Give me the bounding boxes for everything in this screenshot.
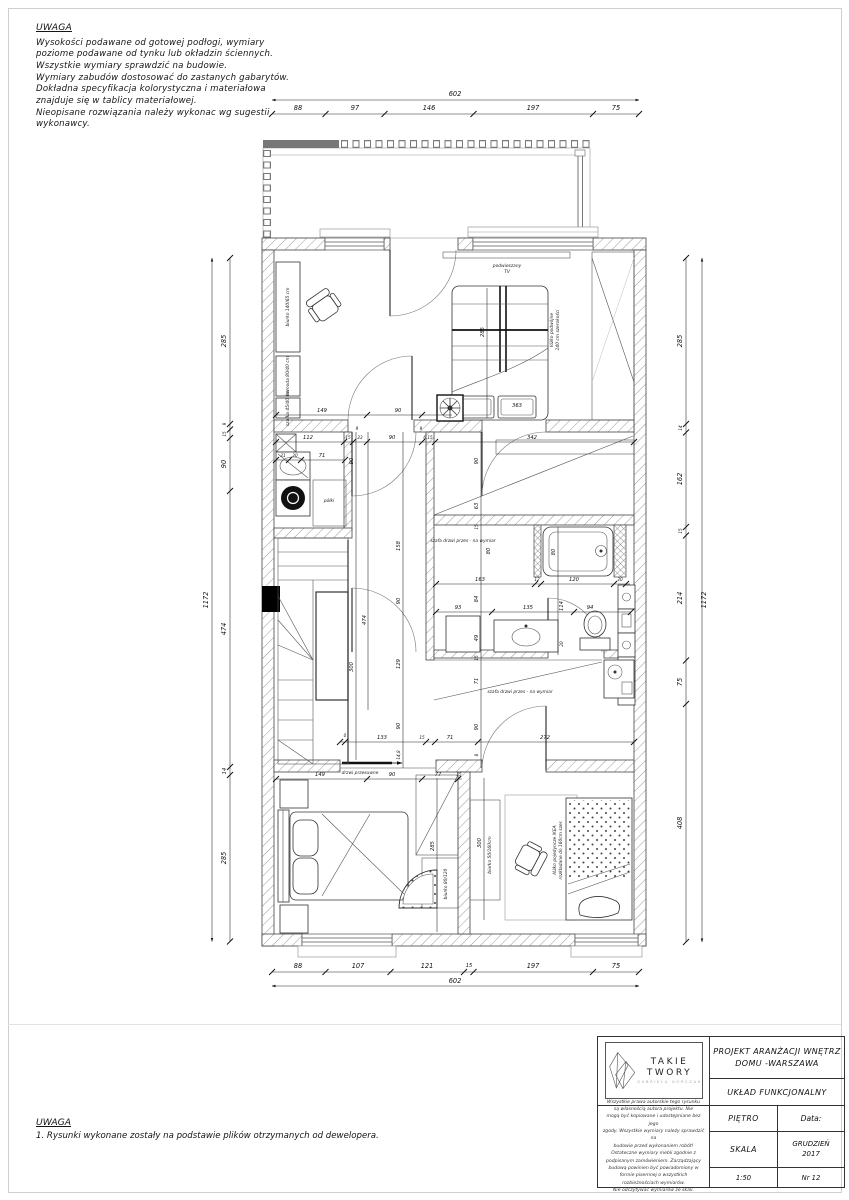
dim-chain-left: 1172 285 9 15 90 474 14 285 xyxy=(202,255,233,945)
dim-label: 474 xyxy=(362,615,368,625)
dim-label: 12 xyxy=(534,577,540,582)
dim-label: 75 xyxy=(612,962,620,970)
dim-label: 14,8 xyxy=(396,750,401,760)
door-balcony xyxy=(390,250,456,316)
dim-label: 14 xyxy=(222,768,228,775)
dim-label: 90 xyxy=(389,772,396,778)
date-value-cell: GRUDZIEŃ 2017 xyxy=(777,1131,844,1167)
corner-sink-unit xyxy=(604,660,634,698)
project-title-cell: PROJEKT ARANŻACJI WNĘTRZ DOMU -WARSZAWA xyxy=(709,1037,844,1078)
legal-line: budowie przed wykonaniem robót! xyxy=(601,1143,706,1150)
dim-label: 15 xyxy=(222,431,227,437)
sheet-number-cell: Nr 12 xyxy=(777,1167,844,1187)
logo-kites-icon xyxy=(606,1044,637,1098)
dim-label: 20 xyxy=(559,641,564,647)
desk-chair-bottom xyxy=(512,840,550,880)
dim-label: 285 xyxy=(220,852,228,865)
desk-bottom-right xyxy=(470,800,500,900)
dim-label: 158 xyxy=(396,540,402,551)
legal-line: Wszystkie prawa autorskie tego rysunku xyxy=(601,1099,706,1106)
legal-line: są własnością autora projektu. Nie xyxy=(601,1106,706,1113)
dim-label: 97 xyxy=(351,104,360,112)
dim-chain-bottom: 88 107 121 15 197 75 602 xyxy=(269,962,642,986)
label-shelves: półki xyxy=(323,497,335,504)
dim-label: 77 xyxy=(435,772,442,778)
wardrobe-hall-upper xyxy=(434,436,634,515)
dim-label: 84 xyxy=(474,596,480,603)
label-bed-double: łóżko podwójne xyxy=(548,313,555,347)
dim-label: 114 xyxy=(559,601,565,611)
dim-label: 90 xyxy=(396,597,402,604)
dim-label: 75 xyxy=(676,678,684,686)
dim-label: 90 xyxy=(396,722,402,729)
dim-label: 272 xyxy=(540,735,550,741)
scale-label-cell: SKALA xyxy=(709,1131,777,1167)
label-desk-top: biurko 140/65 cm xyxy=(285,288,291,327)
dim-label: 71 xyxy=(447,735,454,741)
legal-line: formie pisemnej o wszystkich xyxy=(601,1172,706,1179)
dim-label: 342 xyxy=(527,435,537,441)
window-bottom-left xyxy=(298,934,396,957)
double-bed-bottom xyxy=(278,810,408,902)
dim-label: 162 xyxy=(676,473,684,486)
scale-value-cell: 1:50 xyxy=(709,1167,777,1187)
dim-label: 20 xyxy=(292,453,298,458)
label-sliding-door: drzwi przesuwne xyxy=(342,770,379,776)
nightstand-top xyxy=(280,780,308,808)
notes-bottom-title: UWAGA xyxy=(36,1116,379,1130)
dim-label: 300 xyxy=(349,661,355,672)
label-cabinet: szafka 45/40 cm xyxy=(285,390,291,426)
label-tv2: TV xyxy=(504,269,511,275)
balcony-wall-solid xyxy=(263,140,339,148)
project-title-line1: PROJEKT ARANŻACJI WNĘTRZ xyxy=(713,1046,841,1058)
balcony-glass-wall xyxy=(575,150,585,236)
stage-cell: PIĘTRO xyxy=(709,1105,777,1131)
dim-label: 214 xyxy=(676,592,684,605)
utility-cabinet xyxy=(276,434,296,452)
dim-label: 71 xyxy=(474,678,480,685)
dim-total-bottom: 602 xyxy=(449,977,462,985)
door-bottom-hall xyxy=(482,706,546,770)
balcony xyxy=(263,140,590,238)
dim-label: 474 xyxy=(220,623,228,636)
legal-line: podpisanym zamówieniem. Zarządzający xyxy=(601,1158,706,1165)
dim-label: 120 xyxy=(569,577,580,583)
dim-label: 112 xyxy=(303,435,313,441)
dim-label: 15 xyxy=(466,963,473,969)
dim-label: 149 xyxy=(315,772,325,778)
dim-label: 107 xyxy=(352,962,365,970)
dim-label: 88 xyxy=(294,962,302,970)
title-block: TAKIE TWORY GABRIELA GORCZAK PROJEKT ARA… xyxy=(597,1036,845,1188)
dim-label: 149 xyxy=(317,408,327,414)
wardrobe-top-right xyxy=(592,252,634,420)
label-tv: podwieszany xyxy=(492,263,522,269)
fan-heater xyxy=(437,395,463,421)
dim-label: 14 xyxy=(678,425,683,431)
dim-label: 408 xyxy=(676,817,684,830)
dim-label: 163 xyxy=(475,577,485,583)
dim-label: 9 xyxy=(222,422,227,425)
dim-label: 9 xyxy=(356,426,359,431)
dim-label: 8 xyxy=(474,753,479,756)
tv-wall-unit xyxy=(443,252,570,258)
nightstand-bottom xyxy=(280,905,308,933)
sliding-door xyxy=(340,763,436,768)
balcony-railing xyxy=(267,144,590,238)
dim-label: 121 xyxy=(421,962,434,970)
label-desk-bl: biurko 80/120 xyxy=(443,868,449,899)
window-bottom-right xyxy=(571,934,642,957)
dim-label: 6,15 xyxy=(423,435,433,440)
door-corridor-top xyxy=(352,432,416,496)
dim-label: 23 xyxy=(357,435,363,440)
dim-label: 133 xyxy=(377,735,387,741)
washing-machine xyxy=(276,480,310,516)
legal-line: budową powinien być powiadomiony w xyxy=(601,1165,706,1172)
window-top-left xyxy=(320,229,390,250)
drawing-sheet: UWAGA Wysokości podawane od gotowej podł… xyxy=(0,0,849,1200)
toilet xyxy=(580,611,610,650)
legal-line: rozbieżnościach wymiarów. xyxy=(601,1180,706,1187)
dim-label: 94 xyxy=(587,605,594,611)
legal-text-cell: Wszystkie prawa autorskie tego rysunku s… xyxy=(598,1105,709,1187)
dim-label: 90 xyxy=(474,723,480,730)
date-month: GRUDZIEŃ xyxy=(792,1140,829,1150)
dim-label: 197 xyxy=(527,962,540,970)
dim-label: 300 xyxy=(477,837,483,848)
dim-label: 63 xyxy=(474,503,480,510)
dim-label: 15 xyxy=(678,528,683,534)
drawing-title-cell: UKŁAD FUNKCJONALNY xyxy=(709,1078,844,1105)
label-desk-br: biurko 50/160cm xyxy=(487,836,493,873)
dim-label: 0 xyxy=(344,733,347,738)
dim-label: 71 xyxy=(319,453,326,459)
project-title-line2: DOMU -WARSZAWA xyxy=(713,1058,841,1070)
dim-label: 90 xyxy=(220,460,228,468)
label-wardrobe-2: szafa drzwi przes - na wymiar xyxy=(487,689,554,695)
logo-box: TAKIE TWORY GABRIELA GORCZAK xyxy=(605,1042,703,1099)
date-year: 2017 xyxy=(802,1150,820,1160)
legal-line: mogą być kopiowane i udostępniane bez je… xyxy=(601,1113,706,1128)
dim-label: 90 xyxy=(474,457,480,464)
dim-label: 90 xyxy=(395,408,402,414)
dim-total-top: 602 xyxy=(449,90,462,98)
dim-label: 21 xyxy=(280,453,286,458)
dim-label: 20 xyxy=(617,577,623,582)
dim-total-right: 1172 xyxy=(700,592,708,609)
dim-label: 285 xyxy=(676,335,684,348)
label-bed-single: łóżko pojedyncze IKEA xyxy=(551,825,558,874)
logo-text: TAKIE TWORY xyxy=(637,1057,702,1079)
bath-cabinet xyxy=(446,616,480,652)
logo-cell: TAKIE TWORY GABRIELA GORCZAK xyxy=(598,1037,709,1105)
logo-subtext: GABRIELA GORCZAK xyxy=(637,1079,702,1084)
door-hall-right xyxy=(482,432,546,496)
notes-bottom-line: 1. Rysunki wykonane zostały na podstawie… xyxy=(36,1130,379,1143)
single-bed xyxy=(566,798,632,920)
washbasin xyxy=(494,620,558,652)
date-label-cell: Data: xyxy=(777,1105,844,1131)
dim-label: 197 xyxy=(527,104,540,112)
notes-bottom: UWAGA 1. Rysunki wykonane zostały na pod… xyxy=(36,1116,379,1143)
staircase xyxy=(278,538,348,764)
label-bed-single2: rozkładane do 160cm szer. xyxy=(558,820,564,879)
dim-label: 285 xyxy=(430,840,436,851)
dim-label: 90 xyxy=(389,435,396,441)
legal-line: zgody. Wszystkie wymiary należy sprawdzi… xyxy=(601,1128,706,1143)
dim-label: 15 xyxy=(419,735,425,740)
dim-label: 15 xyxy=(345,435,351,440)
dim-label: 129 xyxy=(396,659,402,669)
dim-label: 15 xyxy=(474,655,479,661)
dim-label: 285 xyxy=(220,335,228,348)
dim-label: 88 xyxy=(294,104,302,112)
chimney-block xyxy=(262,586,280,612)
dim-label: 146 xyxy=(423,104,436,112)
dim-chain-right: 285 14 162 15 214 75 408 1172 xyxy=(676,255,708,945)
dim-label: 75 xyxy=(612,104,620,112)
dim-label: 15 xyxy=(456,772,462,777)
double-bed-top xyxy=(452,286,548,420)
door-top-room xyxy=(348,356,412,420)
desk-chair-top xyxy=(303,286,343,325)
dim-label: 90 xyxy=(349,457,355,464)
dim-label: 363 xyxy=(512,403,522,409)
dim-chain-top: 602 88 97 146 197 75 xyxy=(269,90,642,117)
dim-total-left: 1172 xyxy=(202,592,210,609)
dim-label: 15 xyxy=(474,524,479,530)
dim-label: 49 xyxy=(474,635,480,642)
legal-line: Ostateczne wymiary mebli zgodnie z xyxy=(601,1150,706,1157)
dim-label: 80 xyxy=(486,547,492,554)
dim-label: 93 xyxy=(455,605,462,611)
dim-label: 135 xyxy=(523,605,534,611)
legal-line: Nie odczytywać wymiarów ze skali. xyxy=(601,1187,706,1194)
dim-label: 285 xyxy=(480,326,486,337)
dim-label: 9 xyxy=(420,426,423,431)
label-bed-double2: 140 cm szerokości xyxy=(554,309,561,351)
label-wardrobe-1: szafa drzwi przes - na wymiar xyxy=(430,538,497,544)
floor-plan: 602 88 97 146 197 75 88 107 121 15 197 7… xyxy=(0,0,849,1030)
window-top-right xyxy=(468,227,598,250)
dim-label: 80 xyxy=(551,548,557,555)
